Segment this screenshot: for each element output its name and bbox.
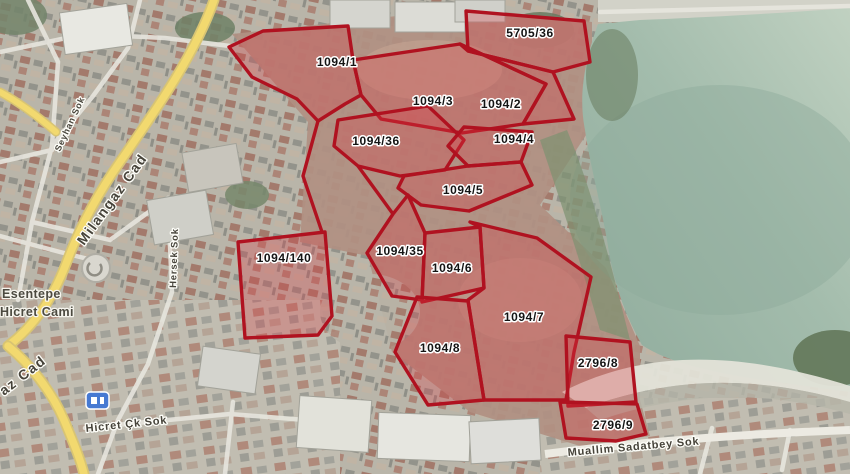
parcel-label: 1094/5 bbox=[443, 183, 483, 197]
parcel-label: 1094/36 bbox=[352, 134, 400, 148]
parcel-label: 1094/1 bbox=[317, 55, 357, 69]
parcel-label: 1094/6 bbox=[432, 261, 472, 275]
parcel-label: 1094/35 bbox=[376, 244, 424, 258]
road-shield-icon bbox=[86, 392, 109, 409]
parcel-2796-8[interactable] bbox=[566, 336, 636, 406]
parcel-label: 1094/3 bbox=[413, 94, 453, 108]
poi-label-line2: Hicret Cami bbox=[0, 305, 74, 319]
shore-trees bbox=[586, 29, 638, 121]
poi-label-line1: Esentepe bbox=[2, 287, 61, 301]
satellite-map-canvas[interactable]: 5705/36 1094/1 1094/3 1094/2 1094/36 109… bbox=[0, 0, 850, 474]
parcel-label: 2796/9 bbox=[593, 418, 633, 432]
parcel-label: 2796/8 bbox=[578, 356, 618, 370]
street-label-hersek: Hersek Sok bbox=[168, 228, 181, 288]
parcel-label: 1094/2 bbox=[481, 97, 521, 111]
map-svg: 5705/36 1094/1 1094/3 1094/2 1094/36 109… bbox=[0, 0, 850, 474]
parcel-1094-140[interactable] bbox=[238, 232, 332, 338]
poi-circle-icon bbox=[82, 254, 110, 282]
parcel-label: 5705/36 bbox=[506, 26, 554, 40]
parcel-label: 1094/7 bbox=[504, 310, 544, 324]
parcel-label: 1094/4 bbox=[494, 132, 534, 146]
parcel-label: 1094/8 bbox=[420, 341, 460, 355]
parcel-label: 1094/140 bbox=[257, 251, 312, 265]
